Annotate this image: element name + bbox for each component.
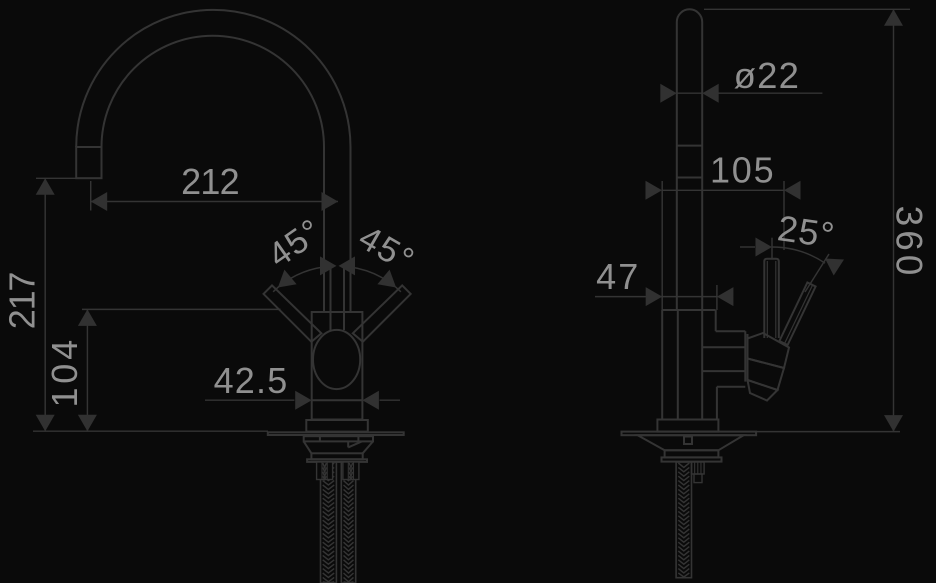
svg-text:105: 105: [710, 150, 775, 191]
svg-text:25°: 25°: [775, 207, 838, 256]
svg-text:104: 104: [44, 336, 85, 407]
svg-text:217: 217: [2, 273, 43, 330]
svg-text:ø22: ø22: [734, 55, 801, 96]
svg-text:360: 360: [889, 206, 930, 280]
svg-text:42.5: 42.5: [214, 360, 289, 401]
svg-text:212: 212: [181, 161, 239, 202]
svg-text:47: 47: [596, 256, 640, 297]
